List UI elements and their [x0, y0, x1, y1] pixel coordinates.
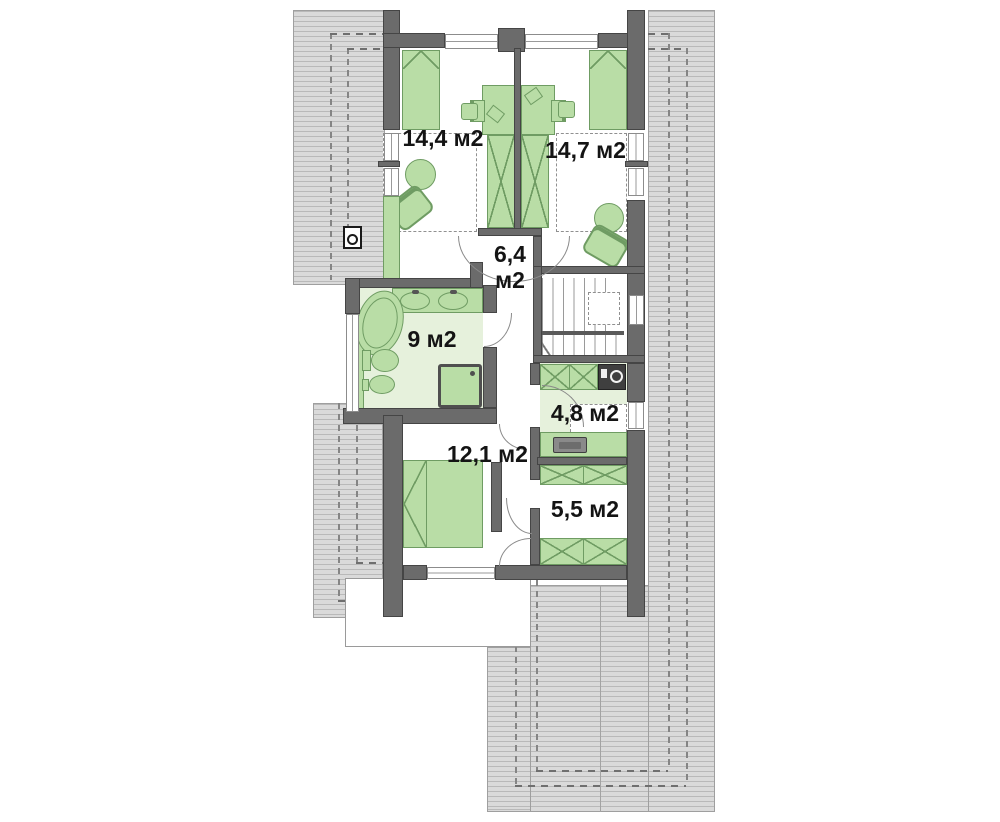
wall-segment	[627, 10, 645, 130]
bidet-base	[362, 379, 369, 391]
toilet-tank	[362, 350, 371, 371]
wall-segment	[345, 278, 360, 314]
roof-dashed-guide	[686, 48, 688, 785]
corridor-south-door-arc	[499, 538, 531, 566]
roof-dashed-guide	[536, 580, 538, 770]
window	[628, 168, 644, 196]
window	[346, 314, 359, 412]
wall-segment	[514, 48, 521, 230]
bathroom-sink	[400, 292, 430, 310]
roof-dashed-guide	[356, 562, 383, 564]
bed-pillow	[403, 51, 421, 69]
roof-dashed-guide	[338, 403, 340, 600]
window	[427, 567, 495, 579]
bathroom-sink	[438, 292, 468, 310]
bed-pillow	[608, 51, 626, 69]
hall-area-unit: м2	[477, 268, 543, 294]
wall-segment	[478, 228, 542, 236]
roof-dashed-guide	[648, 48, 686, 50]
stairs-walk-line	[588, 292, 620, 325]
bathroom-bidet	[362, 375, 396, 395]
roof-dashed-guide	[347, 48, 385, 50]
lower-level-outline	[345, 578, 531, 647]
wall-segment	[345, 278, 483, 288]
wall-segment	[537, 457, 627, 465]
wall-segment	[378, 161, 400, 167]
floor-plan: 14,4 м2 14,7 м2 6,4 м2 9 м2 4,8 м2 12,1 …	[0, 0, 1000, 822]
roof-area-bottom-main	[530, 585, 648, 812]
wall-segment	[383, 33, 445, 48]
roof-area-bottom-left-ext	[487, 647, 530, 812]
bed-pillow	[404, 461, 426, 504]
roof-dashed-guide	[347, 48, 349, 230]
roof-dashed-guide	[356, 403, 358, 562]
shower-drain	[470, 371, 475, 376]
wall-segment	[530, 363, 540, 385]
window	[445, 34, 498, 49]
washer-door	[610, 370, 623, 383]
wardrobe-door-arc	[506, 498, 532, 534]
wall-segment	[491, 462, 502, 532]
wall-segment	[403, 565, 427, 580]
roof-dashed-guide	[668, 33, 670, 770]
bathroom-shower	[438, 364, 482, 408]
wall-segment	[383, 10, 400, 130]
room-area-label-wardrobe: 5,5 м2	[540, 497, 630, 523]
roof-dashed-guide	[330, 33, 332, 280]
bathroom-vanity-counter	[392, 288, 483, 313]
wall-segment	[627, 363, 645, 402]
wall-segment	[627, 200, 645, 366]
roof-dashed-guide	[648, 33, 668, 35]
appliance-detail	[559, 442, 581, 449]
room-area-label-bathroom: 9 м2	[392, 327, 472, 353]
hall-area-value: 6,4	[477, 242, 543, 268]
stair-landing-window	[629, 295, 644, 325]
bed-pillow	[421, 51, 439, 69]
wall-segment	[383, 415, 403, 617]
window	[525, 34, 598, 49]
roof-dashed-guide	[515, 785, 686, 787]
bedroom3-bed	[403, 460, 483, 548]
wall-segment	[533, 355, 645, 363]
wall-segment	[483, 347, 497, 408]
bed-pillow	[590, 51, 608, 69]
wall-segment	[495, 565, 627, 580]
roof-dashed-guide	[330, 33, 385, 35]
bedroom2-bed	[589, 50, 627, 130]
bedroom2-shelf	[558, 101, 575, 118]
faucet-icon	[450, 290, 457, 294]
wall-segment	[627, 430, 645, 617]
room-area-label-laundry: 4,8 м2	[540, 401, 630, 427]
washing-machine	[598, 364, 626, 390]
wardrobe-row-top	[540, 465, 627, 485]
roof-window-glass	[347, 234, 358, 245]
laundry-sink-appliance	[553, 437, 587, 453]
wardrobe-row-bottom	[540, 538, 627, 565]
faucet-icon	[412, 290, 419, 294]
bathroom-door-arc	[484, 313, 512, 347]
roof-window-icon	[343, 226, 362, 249]
room-area-label-hall: 6,4 м2	[477, 242, 543, 294]
bedroom1-table	[405, 159, 436, 190]
washer-detergent-tray	[601, 369, 607, 378]
bedroom1-shelf	[461, 103, 478, 120]
knee-wall-green	[383, 196, 400, 284]
roof-dashed-guide	[536, 770, 668, 772]
room-area-label-bedroom1: 14,4 м2	[383, 126, 503, 152]
bed-blanket-line	[426, 461, 427, 547]
bedroom1-bed	[402, 50, 440, 130]
bidet-bowl	[369, 375, 395, 394]
roof-ridge-line	[600, 585, 601, 812]
room-area-label-bedroom3: 12,1 м2	[430, 442, 545, 468]
window	[628, 402, 644, 429]
roof-area-right-strip	[648, 10, 715, 812]
bed-pillow	[404, 504, 426, 547]
laundry-counter	[540, 432, 627, 457]
room-area-label-bedroom2: 14,7 м2	[528, 138, 643, 164]
wall-segment	[343, 408, 497, 424]
roof-area-top-left	[293, 10, 385, 285]
window	[384, 168, 399, 196]
